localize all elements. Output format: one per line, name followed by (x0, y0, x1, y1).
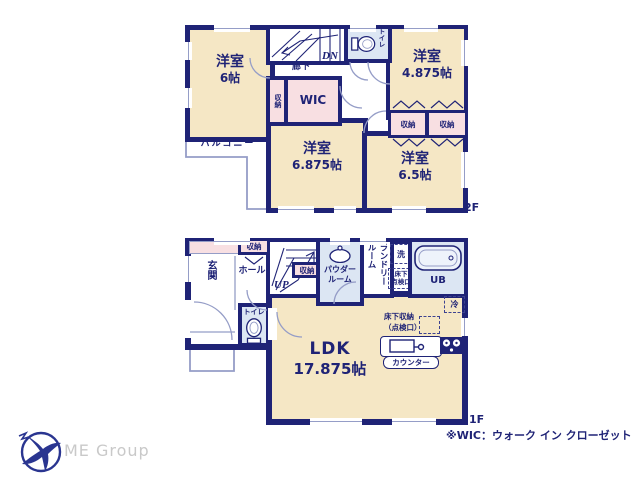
me-group-logo-icon (14, 427, 64, 475)
balcony-outline (186, 142, 266, 209)
logo-text: ME Group (64, 441, 150, 460)
floor-plan: トイレ 収納 WIC 収納 収納 洋室 6帖 洋室 4.875帖 洋室 6.87… (0, 0, 640, 480)
entrance-porch-outline (190, 350, 234, 371)
thin-lines-overlay (0, 0, 640, 480)
wic-note: ※WIC：ウォーク イン クローゼット (446, 427, 632, 443)
